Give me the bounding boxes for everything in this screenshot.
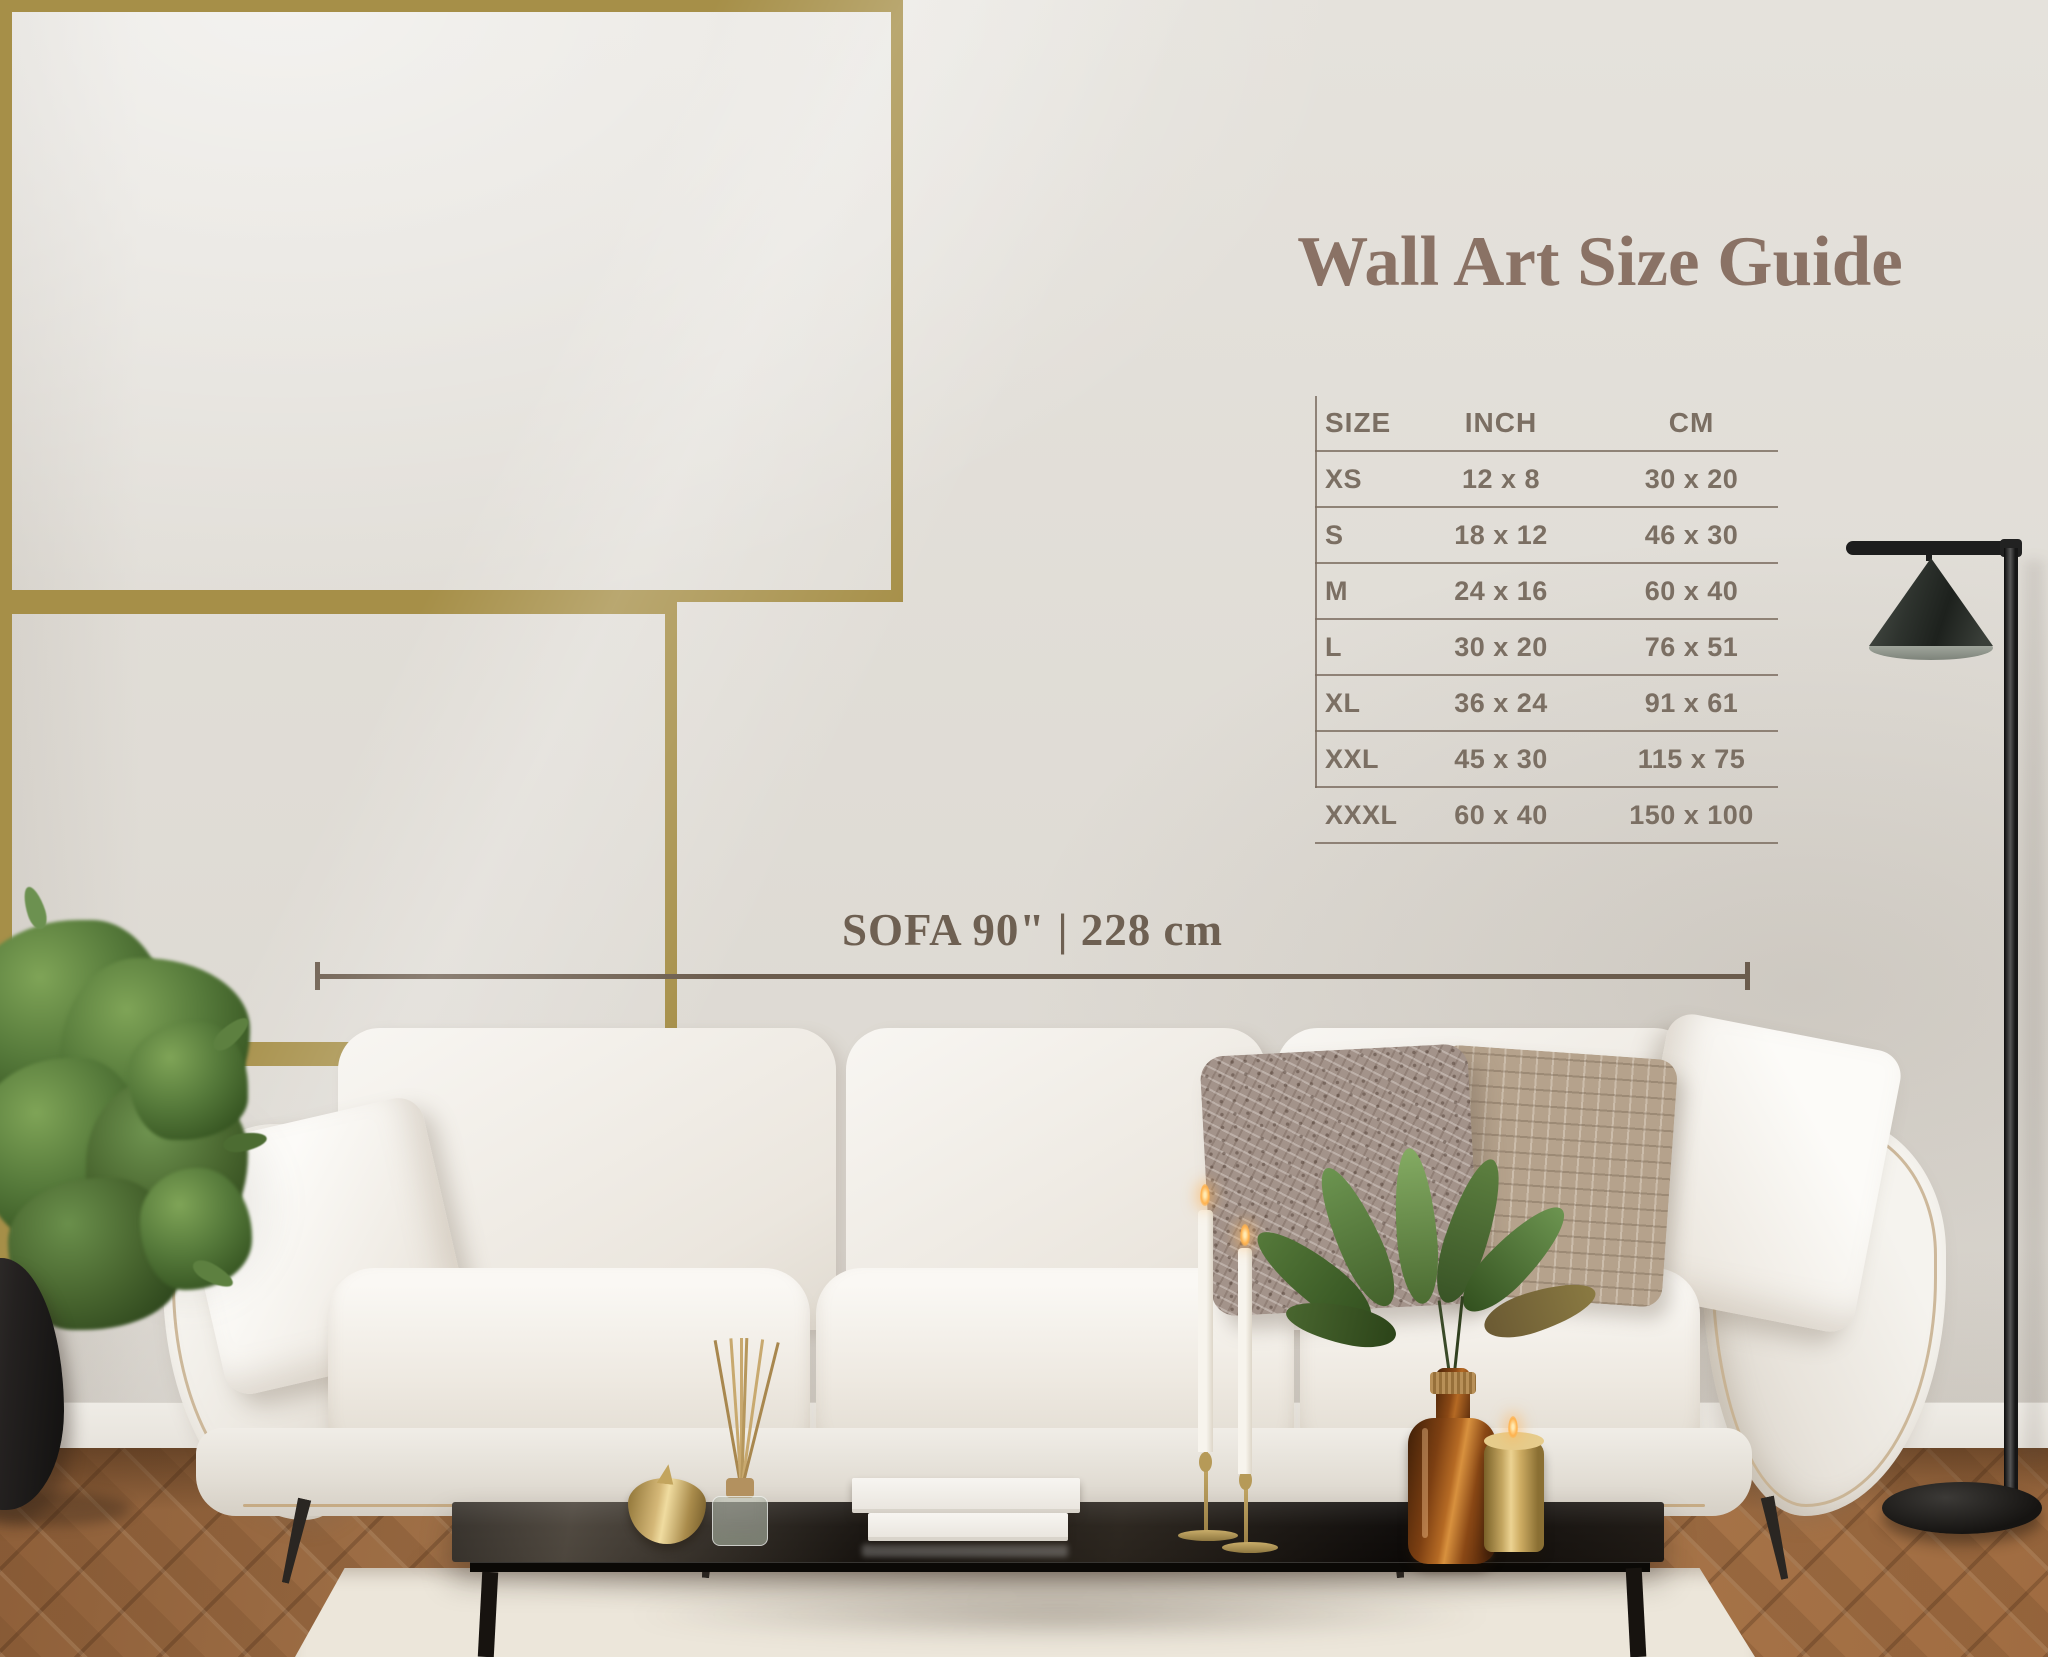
cell-cm: 30 x 20 [1605,464,1778,495]
cell-cm: 91 x 61 [1605,688,1778,719]
taper-candle [1238,1248,1252,1474]
cell-size: L [1315,632,1397,663]
cell-size: XXXL [1315,800,1397,831]
candlestick-base [1178,1530,1238,1541]
cell-inch: 45 x 30 [1397,744,1605,775]
wall-art-size-guide-mockup: XXXLXXLXLLMSXS Wall Art Size Guide SIZE … [0,0,2048,1657]
size-table-row-xl: XL36 x 2491 x 61 [1315,676,1778,732]
taper-candle [1198,1210,1213,1452]
cell-size: XL [1315,688,1397,719]
cell-cm: 76 x 51 [1605,632,1778,663]
header-cm: CM [1605,407,1778,439]
size-table-row-xxxl: XXXL60 x 40150 x 100 [1315,788,1778,844]
lamp-pole-shadow [2024,560,2044,1460]
cell-inch: 60 x 40 [1397,800,1605,831]
cell-inch: 12 x 8 [1397,464,1605,495]
sofa-measure-line [317,974,1748,979]
size-table-row-xs: XS12 x 830 x 20 [1315,452,1778,508]
amber-vase [1408,1418,1496,1564]
size-table-rows: XS12 x 830 x 20S18 x 1246 x 30M24 x 1660… [1315,452,1778,844]
cell-inch: 36 x 24 [1397,688,1605,719]
cell-cm: 46 x 30 [1605,520,1778,551]
diffuser-cap [726,1478,754,1498]
coffee-table-shadow [440,1580,1680,1650]
diffuser-reeds [722,1330,758,1490]
diffuser-bottle [712,1496,768,1546]
cell-size: M [1315,576,1397,607]
cell-cm: 150 x 100 [1605,800,1778,831]
size-table-row-m: M24 x 1660 x 40 [1315,564,1778,620]
cell-cm: 60 x 40 [1605,576,1778,607]
size-table-header: SIZE INCH CM [1315,396,1778,452]
header-inch: INCH [1397,407,1605,439]
candlestick-base [1222,1542,1278,1553]
cell-inch: 18 x 12 [1397,520,1605,551]
header-size: SIZE [1315,407,1397,439]
candle-flame [1508,1416,1518,1438]
candlestick-node [1199,1452,1212,1472]
cell-inch: 24 x 16 [1397,576,1605,607]
cell-size: S [1315,520,1397,551]
measure-tick-right [1745,962,1750,990]
cell-inch: 30 x 20 [1397,632,1605,663]
frame-rect-xxxl: XXXL [0,0,903,602]
tabletop-reflection [862,1544,1068,1557]
cell-size: XS [1315,464,1397,495]
size-table-row-s: S18 x 1246 x 30 [1315,508,1778,564]
gold-pillar-candle [1484,1440,1544,1552]
page-title: Wall Art Size Guide [1268,216,1932,316]
size-table: SIZE INCH CM XS12 x 830 x 20S18 x 1246 x… [1315,396,1778,844]
book [868,1513,1068,1541]
size-table-row-l: L30 x 2076 x 51 [1315,620,1778,676]
measure-tick-left [315,962,320,990]
candle-flame [1240,1224,1250,1246]
candle-flame [1200,1184,1210,1206]
size-table-row-xxl: XXL45 x 30115 x 75 [1315,732,1778,788]
amber-vase-wrap [1430,1372,1476,1394]
floor-lamp-pole [2004,548,2018,1496]
cell-cm: 115 x 75 [1605,744,1778,775]
book [852,1478,1080,1513]
sofa-measure-label: SOFA 90" | 228 cm [317,908,1748,953]
floor-lamp-arm [1846,541,2018,555]
cell-size: XXL [1315,744,1397,775]
floor-lamp-base [1882,1482,2042,1534]
